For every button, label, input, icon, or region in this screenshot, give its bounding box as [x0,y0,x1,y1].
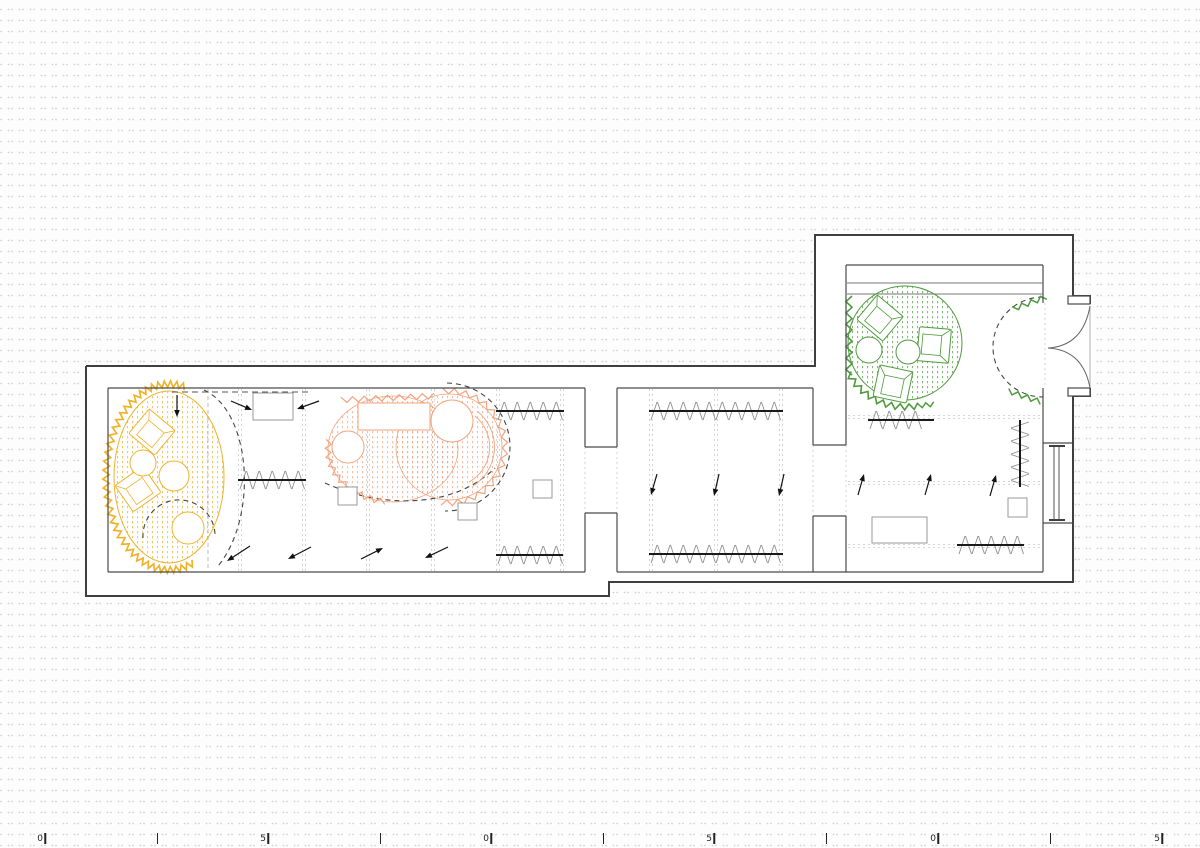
ruler-tick [824,833,827,844]
ruler-tick: 5 [706,833,715,844]
round-table [856,337,882,363]
ruler-tick-label: 0 [37,834,43,844]
building-floor [86,235,1093,596]
plinth-box [253,393,293,420]
ruler-tick-mark [826,833,828,844]
armchair [917,327,952,364]
round-table [332,431,364,463]
ruler-tick-label: 5 [1154,834,1160,844]
ruler-tick-mark [157,833,159,844]
ruler-tick-mark [380,833,382,844]
ruler-tick-label: 5 [260,834,266,844]
plinth-box [338,487,357,505]
ruler-tick-mark [938,833,940,844]
background-grid: 050505 [0,0,1200,848]
scale-ruler: 050505 [0,830,1200,846]
ruler-tick: 0 [483,833,492,844]
armchair [873,365,913,403]
ruler-tick [601,833,604,844]
round-table [896,340,920,364]
ruler-tick-label: 0 [930,834,936,844]
ruler-tick-label: 0 [483,834,489,844]
table-rectangle [358,403,430,430]
round-table [431,400,473,442]
ruler-tick-mark [714,833,716,844]
ruler-tick-mark [1050,833,1052,844]
plinth-box [458,503,477,520]
ruler-tick: 0 [37,833,46,844]
door-jamb [1068,296,1090,304]
ruler-tick [1048,833,1051,844]
ruler-tick: 5 [260,833,269,844]
ruler-tick-mark [603,833,605,844]
ruler-tick-label: 5 [706,834,712,844]
ruler-tick-mark [268,833,270,844]
floor-plan-svg [0,0,1200,848]
ruler-tick: 5 [1154,833,1163,844]
ruler-tick: 0 [930,833,939,844]
ruler-tick-mark [1162,833,1164,844]
plinth-box [533,480,552,498]
round-table [130,450,156,476]
round-table [172,512,204,544]
plinth-box [1008,498,1027,517]
table-rectangle [872,517,927,543]
ruler-tick-mark [45,833,47,844]
ruler-tick [378,833,381,844]
ruler-tick-mark [491,833,493,844]
ruler-tick [155,833,158,844]
door-jamb [1068,388,1090,396]
round-table [159,461,189,491]
